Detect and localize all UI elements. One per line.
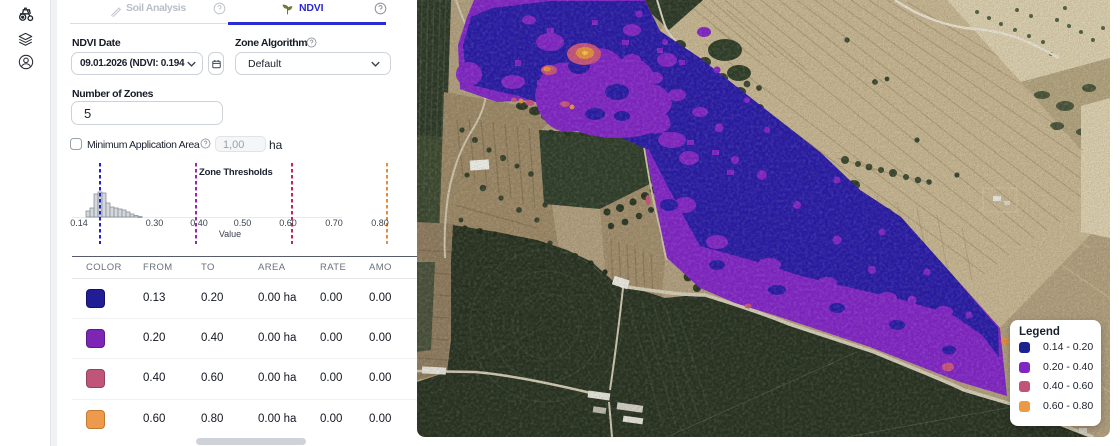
svg-text:0.40: 0.40 (190, 218, 208, 228)
svg-text:Value: Value (219, 229, 241, 239)
svg-text:0.50: 0.50 (234, 218, 252, 228)
svg-text:0.60: 0.60 (279, 218, 297, 228)
svg-text:0.14: 0.14 (70, 218, 88, 228)
svg-text:0.30: 0.30 (146, 218, 164, 228)
svg-text:0.70: 0.70 (325, 218, 343, 228)
svg-text:Zone Thresholds: Zone Thresholds (199, 167, 273, 178)
svg-text:0.80: 0.80 (371, 218, 389, 228)
